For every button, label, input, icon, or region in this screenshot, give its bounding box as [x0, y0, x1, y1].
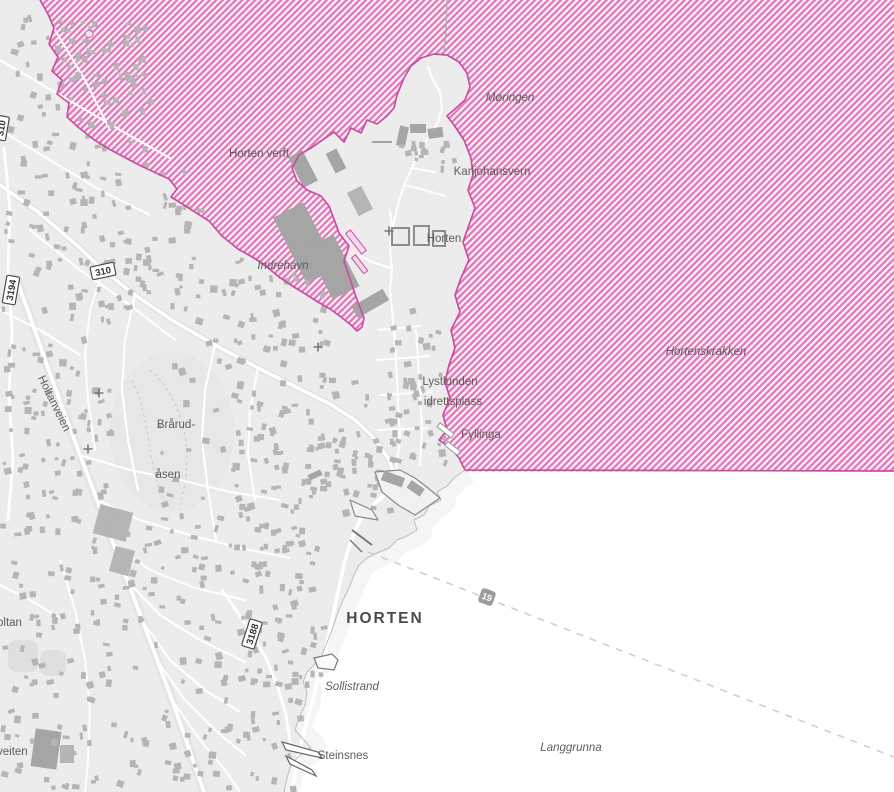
map-label-langgrunna: Langgrunna: [540, 742, 601, 754]
building: [403, 378, 407, 383]
building: [373, 484, 378, 490]
building: [96, 619, 100, 626]
building: [186, 448, 191, 452]
building: [100, 599, 106, 605]
building: [88, 121, 96, 129]
map-label-horten-city: HORTEN: [346, 610, 423, 627]
building: [107, 389, 111, 393]
building: [119, 74, 123, 81]
building: [37, 224, 44, 232]
building: [87, 740, 92, 746]
map-label-asen: åsen: [156, 469, 181, 481]
building: [97, 287, 101, 292]
building: [236, 430, 241, 436]
building: [177, 596, 181, 601]
building: [64, 575, 71, 580]
building: [14, 716, 21, 724]
building: [266, 675, 272, 679]
building: [280, 320, 286, 327]
building: [390, 419, 397, 425]
building: [52, 617, 58, 625]
building: [232, 463, 240, 471]
building: [269, 334, 273, 337]
building: [103, 483, 108, 489]
building: [0, 523, 6, 528]
building: [197, 771, 203, 777]
building: [280, 584, 285, 591]
building: [415, 426, 420, 430]
building: [324, 472, 330, 478]
building: [389, 406, 395, 411]
building: [147, 99, 154, 104]
building: [91, 50, 96, 55]
building: [55, 45, 62, 53]
building: [195, 688, 203, 694]
building: [53, 693, 58, 698]
building: [179, 657, 186, 665]
building: [256, 776, 259, 781]
building: [16, 71, 20, 77]
building: [239, 440, 244, 446]
building: [423, 343, 431, 351]
building: [46, 36, 49, 40]
building: [56, 373, 60, 379]
building: [329, 378, 336, 384]
building: [364, 404, 368, 408]
building: [92, 214, 97, 219]
building: [52, 133, 59, 137]
building: [189, 377, 196, 382]
building: [367, 484, 372, 488]
building: [125, 258, 132, 264]
building: [254, 527, 261, 533]
building: [319, 330, 323, 334]
building: [33, 411, 39, 416]
building: [56, 443, 60, 447]
building: [87, 697, 93, 702]
building: [152, 269, 159, 273]
building: [86, 460, 92, 465]
map-viewport[interactable]: 3103194318831019 MøringenHorten verftKar…: [0, 0, 894, 792]
building: [179, 513, 184, 519]
building: [245, 668, 249, 672]
building: [283, 462, 289, 470]
building: [168, 237, 176, 244]
building: [234, 339, 237, 343]
building: [23, 17, 28, 23]
building: [208, 751, 216, 759]
building: [122, 110, 129, 117]
building: [26, 395, 31, 400]
building: [80, 171, 88, 179]
building: [122, 625, 128, 631]
building: [257, 668, 262, 674]
building: [115, 594, 120, 600]
map-label-horten-verft: Horten verft: [229, 148, 290, 160]
building: [217, 358, 222, 364]
building: [355, 456, 358, 460]
building: [104, 100, 111, 104]
building: [431, 345, 435, 351]
building: [81, 672, 86, 679]
building: [111, 722, 117, 727]
building: [35, 175, 42, 179]
building: [242, 545, 246, 551]
building: [247, 735, 250, 741]
building: [368, 455, 373, 462]
building: [259, 289, 266, 295]
building: [78, 118, 84, 121]
building: [170, 303, 174, 309]
building: [72, 490, 77, 496]
building: [418, 401, 422, 406]
building: [292, 672, 298, 677]
building: [192, 257, 197, 261]
building: [75, 623, 81, 629]
building: [113, 98, 119, 104]
building: [226, 785, 232, 790]
map-label-sollistrand: Sollistrand: [325, 681, 379, 693]
building: [77, 471, 83, 477]
building: [299, 528, 305, 535]
building: [61, 246, 66, 251]
building: [196, 294, 201, 298]
building: [310, 671, 314, 678]
building: [299, 580, 304, 584]
building: [215, 565, 222, 572]
building: [310, 561, 316, 565]
building: [40, 526, 46, 533]
building: [143, 25, 148, 31]
building: [276, 292, 281, 297]
building: [368, 461, 373, 467]
building: [309, 444, 313, 451]
building: [306, 409, 310, 416]
building: [414, 151, 418, 156]
building: [33, 352, 41, 356]
building: [91, 780, 96, 784]
building: [30, 728, 61, 769]
building: [2, 307, 5, 312]
building: [22, 347, 26, 351]
building: [123, 40, 130, 46]
map-canvas: 3103194318831019 MøringenHorten verftKar…: [0, 0, 894, 792]
building: [395, 340, 402, 345]
building: [262, 621, 268, 625]
building: [30, 591, 36, 597]
building: [437, 443, 440, 446]
building: [392, 430, 397, 437]
building: [201, 576, 207, 581]
building: [8, 363, 15, 368]
building: [24, 428, 29, 435]
map-label-karljohansvern: Karljohansvern: [454, 166, 531, 178]
building: [90, 576, 95, 582]
building: [195, 525, 201, 529]
building: [189, 264, 194, 270]
building: [101, 316, 105, 322]
building: [48, 190, 54, 196]
building: [264, 544, 268, 549]
building: [36, 632, 42, 638]
building: [61, 57, 67, 62]
sports-field: [8, 640, 38, 672]
building: [143, 587, 147, 590]
building: [42, 112, 47, 117]
building: [184, 221, 193, 230]
building: [158, 486, 164, 493]
building: [351, 459, 356, 467]
building: [288, 698, 293, 703]
building: [43, 211, 49, 216]
building: [32, 141, 38, 148]
building: [193, 764, 197, 768]
building: [152, 237, 157, 241]
building: [425, 420, 431, 424]
building: [41, 411, 45, 417]
building: [55, 104, 60, 111]
building: [427, 127, 443, 139]
building: [185, 733, 191, 738]
building: [390, 348, 395, 353]
building: [92, 21, 98, 28]
building: [61, 27, 68, 32]
building: [248, 276, 252, 282]
building: [46, 261, 52, 267]
building: [123, 72, 130, 76]
building: [37, 357, 44, 363]
building: [21, 24, 26, 30]
building: [69, 303, 76, 310]
building: [313, 633, 317, 640]
building: [239, 450, 245, 455]
building: [440, 166, 444, 173]
building: [105, 679, 112, 687]
building: [213, 338, 218, 343]
map-label-indrehavn: Indrehavn: [257, 260, 308, 272]
building: [37, 73, 43, 80]
building: [201, 497, 205, 501]
building: [213, 770, 221, 777]
building: [106, 431, 114, 436]
building: [101, 191, 105, 198]
building: [319, 672, 323, 677]
building: [251, 711, 256, 719]
building: [80, 199, 88, 206]
building: [183, 773, 190, 779]
building: [438, 449, 446, 457]
building: [295, 573, 303, 579]
building: [173, 768, 180, 773]
building: [82, 56, 88, 63]
building: [133, 64, 138, 70]
building: [18, 190, 26, 194]
building: [299, 346, 305, 352]
building: [210, 285, 218, 293]
building: [102, 78, 108, 85]
building: [284, 683, 292, 690]
map-label-horten: Horten: [427, 233, 462, 245]
building: [32, 713, 39, 719]
building: [26, 495, 31, 500]
building: [429, 334, 433, 338]
building: [80, 732, 84, 739]
building: [154, 642, 158, 649]
building: [299, 675, 302, 680]
building: [199, 279, 205, 284]
building: [68, 65, 72, 69]
building: [263, 738, 266, 742]
building: [406, 325, 411, 331]
building: [294, 504, 299, 510]
building: [135, 37, 140, 43]
building: [102, 48, 107, 55]
building: [276, 485, 281, 489]
building: [277, 720, 281, 725]
map-label-fyllinga: Fyllinga: [461, 429, 501, 441]
building: [320, 486, 327, 492]
building: [19, 584, 23, 588]
map-label-lystlunden: Lystlunden: [422, 376, 477, 388]
building: [280, 380, 287, 387]
building: [280, 360, 288, 368]
building: [31, 40, 37, 45]
map-label-moringen: Møringen: [486, 92, 535, 104]
building: [181, 547, 189, 553]
building: [0, 725, 6, 732]
building: [309, 495, 313, 498]
building: [42, 490, 47, 497]
building: [365, 394, 369, 401]
building: [68, 284, 74, 289]
building: [288, 339, 296, 346]
building: [339, 428, 344, 432]
building: [142, 740, 149, 748]
building: [134, 26, 141, 34]
building: [411, 453, 416, 457]
building: [319, 373, 325, 378]
building: [288, 660, 294, 664]
building: [44, 777, 50, 783]
building: [131, 43, 135, 47]
building: [4, 734, 11, 741]
building: [291, 605, 297, 610]
building: [98, 300, 105, 307]
building: [101, 93, 106, 98]
building: [376, 446, 383, 453]
building: [332, 464, 338, 471]
building: [422, 150, 429, 155]
building: [234, 544, 240, 550]
building: [292, 272, 296, 276]
building: [192, 567, 197, 573]
building: [221, 729, 229, 733]
building: [326, 442, 332, 448]
building: [54, 470, 61, 476]
building: [135, 276, 141, 282]
building: [282, 545, 287, 552]
building: [106, 49, 111, 53]
building: [165, 721, 171, 729]
building: [252, 390, 257, 397]
building: [55, 528, 60, 535]
building: [334, 459, 341, 463]
building: [250, 678, 255, 685]
building: [159, 605, 165, 609]
map-label-veiten-partial: veiten: [0, 746, 28, 758]
building: [114, 63, 120, 71]
building: [352, 468, 357, 475]
building: [309, 419, 314, 425]
building: [66, 390, 72, 397]
building: [82, 39, 89, 43]
building: [36, 620, 40, 627]
building: [176, 206, 182, 211]
building: [4, 229, 7, 234]
building: [71, 21, 75, 27]
map-label-brarud: Brårud-: [157, 419, 196, 431]
building: [123, 305, 128, 308]
building: [320, 385, 324, 389]
building: [97, 492, 104, 500]
building: [315, 447, 318, 451]
building: [97, 419, 101, 426]
building: [208, 760, 213, 765]
building: [298, 498, 302, 504]
building: [136, 253, 142, 260]
building: [128, 91, 132, 96]
building: [45, 94, 51, 100]
building: [246, 516, 250, 522]
map-label-oltan-partial: oltan: [0, 617, 22, 629]
building: [405, 150, 412, 157]
building: [87, 161, 91, 166]
building: [110, 242, 115, 247]
map-label-hortenskrakken: Hortenskrakken: [666, 346, 747, 358]
building: [251, 334, 255, 340]
building: [169, 203, 177, 208]
building: [259, 585, 263, 590]
building: [68, 97, 73, 101]
building: [256, 438, 261, 442]
building: [123, 531, 130, 537]
building: [292, 678, 299, 685]
building: [125, 205, 131, 210]
map-label-idrettsplass: idrettsplass: [424, 396, 482, 408]
building: [305, 464, 311, 469]
building: [30, 683, 34, 687]
building: [130, 738, 134, 743]
building: [273, 346, 278, 351]
building: [88, 196, 94, 204]
building: [29, 224, 34, 228]
building: [184, 620, 191, 625]
building: [263, 681, 270, 687]
building: [146, 526, 153, 531]
map-label-steinsnes: Steinsnes: [318, 750, 369, 762]
building: [5, 406, 12, 412]
building: [441, 160, 445, 164]
building: [286, 614, 293, 617]
islet: [85, 31, 93, 38]
building: [419, 142, 425, 148]
building: [138, 59, 146, 64]
building: [305, 280, 309, 287]
building: [59, 359, 67, 366]
building: [249, 317, 257, 322]
building: [55, 457, 59, 461]
building: [24, 528, 30, 536]
